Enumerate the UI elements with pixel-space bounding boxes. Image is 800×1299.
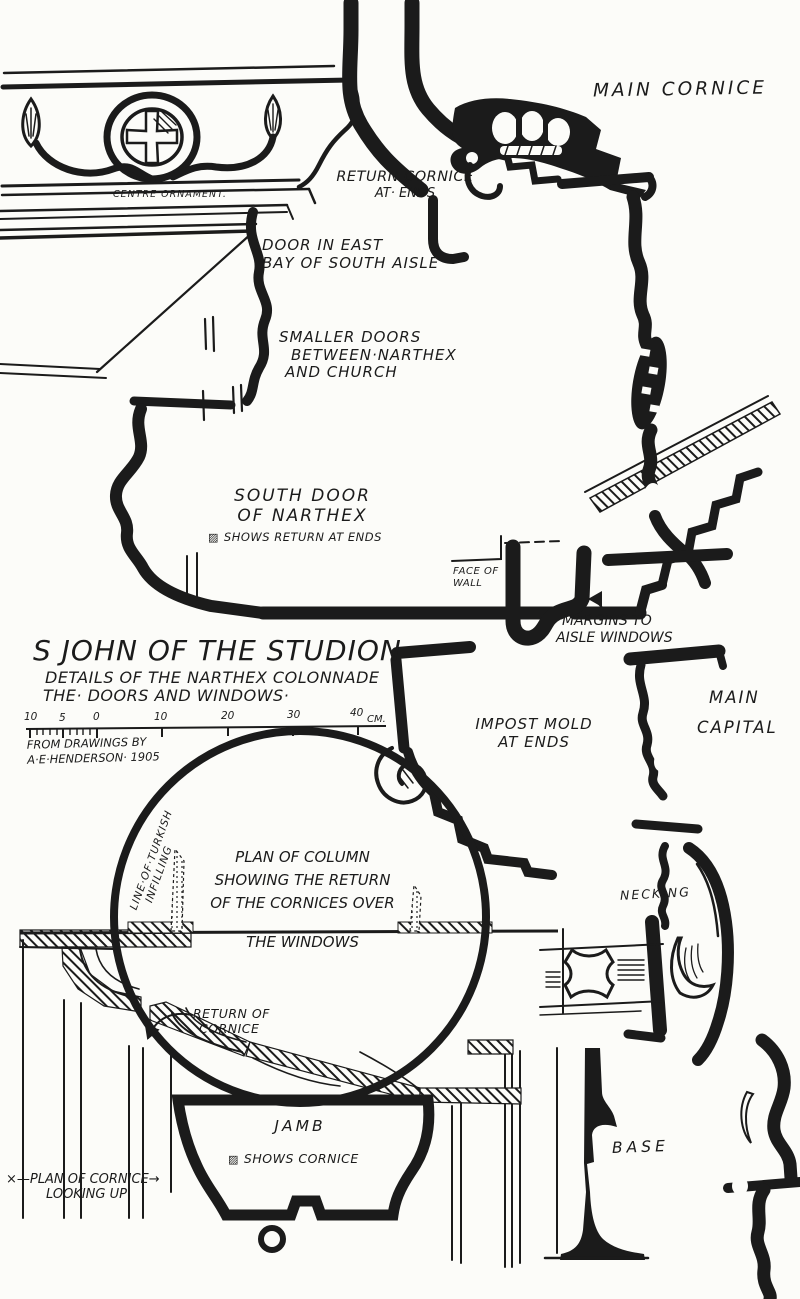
south-door-note: ▨SHOWS RETURN AT ENDS (208, 531, 382, 545)
hatch-swatch-icon: ▨ (208, 531, 219, 544)
return-of-cornice-line2: CORNICE (193, 1022, 270, 1037)
impost-mold-line1: IMPOST MOLD (468, 716, 600, 734)
centre-ornament-label: CENTRE ORNAMENT. (113, 189, 227, 200)
jamb-note-text: SHOWS CORNICE (244, 1151, 359, 1166)
main-cornice-label: MAIN CORNICE (593, 77, 767, 102)
impost-mold-label: IMPOST MOLD AT ENDS (468, 716, 600, 751)
scale-tick-label-5: 5 (59, 712, 66, 724)
main-capital-line2: CAPITAL (697, 713, 778, 743)
return-of-cornice-label: RETURN OF CORNICE (193, 1007, 270, 1037)
scale-tick-label-10: 10 (154, 711, 167, 723)
plan-of-cornice-line2: LOOKING UP (6, 1187, 160, 1202)
base-profile-drawing (452, 1040, 800, 1299)
credit-label: FROM DRAWINGS BY A·E·HENDERSON· 1905 (27, 734, 160, 767)
plate-subtitle-line2: THE· DOORS AND WINDOWS· (43, 687, 289, 706)
main-capital-line1: MAIN (697, 683, 778, 713)
margins-line1: MARGINS TO (556, 613, 673, 630)
door-east-bay-label: DOOR IN EAST BAY OF SOUTH AISLE (262, 237, 439, 272)
plan-of-cornice-line1: ×—PLAN OF CORNICE→ (6, 1172, 160, 1187)
smaller-doors-line2: BETWEEN·NARTHEX (279, 347, 457, 365)
impost-mold-line2: AT ENDS (468, 734, 600, 752)
south-door-line2: OF NARTHEX (200, 506, 405, 526)
scale-tick-label-20: 20 (221, 710, 234, 722)
jamb-note: ▨SHOWS CORNICE (228, 1152, 359, 1167)
south-door-label: SOUTH DOOR OF NARTHEX (200, 486, 405, 526)
plate-title: S JOHN OF THE STUDION (33, 634, 402, 667)
architectural-plate: MAIN CORNICE RETURN CORNICE AT· ENDS CEN… (0, 0, 800, 1299)
main-capital-label: MAIN CAPITAL (697, 683, 778, 742)
return-cornice-line1: RETURN CORNICE (330, 169, 480, 186)
plan-of-column-line2: SHOWING THE RETURN (180, 869, 425, 892)
door-east-bay-line1: DOOR IN EAST (262, 237, 439, 255)
face-of-wall-line1: FACE OF (453, 566, 499, 578)
jamb-label: JAMB (240, 1117, 360, 1135)
plan-of-column-line1: PLAN OF COLUMN (180, 846, 425, 869)
margins-aisle-windows-label: MARGINS TO AISLE WINDOWS (556, 613, 673, 646)
south-door-note-text: SHOWS RETURN AT ENDS (224, 530, 382, 544)
scale-tick-label-10-left: 10 (24, 711, 37, 723)
scale-tick-label-0: 0 (93, 711, 100, 723)
plan-of-column-line3: OF THE CORNICES OVER (180, 892, 425, 915)
right-wall-profile-drawing (562, 177, 727, 583)
scale-tick-label-40: 40 (350, 707, 363, 719)
margins-line2: AISLE WINDOWS (556, 630, 673, 647)
door-east-bay-line2: BAY OF SOUTH AISLE (262, 255, 439, 273)
face-of-wall-label: FACE OF WALL (453, 566, 499, 590)
scale-unit-label: CM. (367, 714, 386, 725)
south-door-line1: SOUTH DOOR (200, 486, 405, 506)
plan-of-column-label: PLAN OF COLUMN SHOWING THE RETURN OF THE… (180, 846, 425, 954)
return-of-cornice-line1: RETURN OF (193, 1007, 270, 1022)
base-label: BASE (612, 1137, 669, 1157)
smaller-doors-label: SMALLER DOORS BETWEEN·NARTHEX AND CHURCH (279, 329, 457, 382)
scale-tick-label-30: 30 (287, 709, 300, 721)
plan-of-column-line4: THE WINDOWS (180, 931, 425, 954)
maltese-cross-drawing (540, 929, 663, 1015)
return-cornice-label: RETURN CORNICE AT· ENDS (330, 169, 480, 201)
smaller-doors-line1: SMALLER DOORS (279, 329, 457, 347)
face-of-wall-line2: WALL (453, 578, 499, 590)
smaller-doors-line3: AND CHURCH (279, 364, 457, 382)
return-cornice-line2: AT· ENDS (330, 186, 480, 201)
hatch-swatch-icon: ▨ (228, 1153, 239, 1166)
plan-of-cornice-label: ×—PLAN OF CORNICE→ LOOKING UP (6, 1172, 160, 1203)
